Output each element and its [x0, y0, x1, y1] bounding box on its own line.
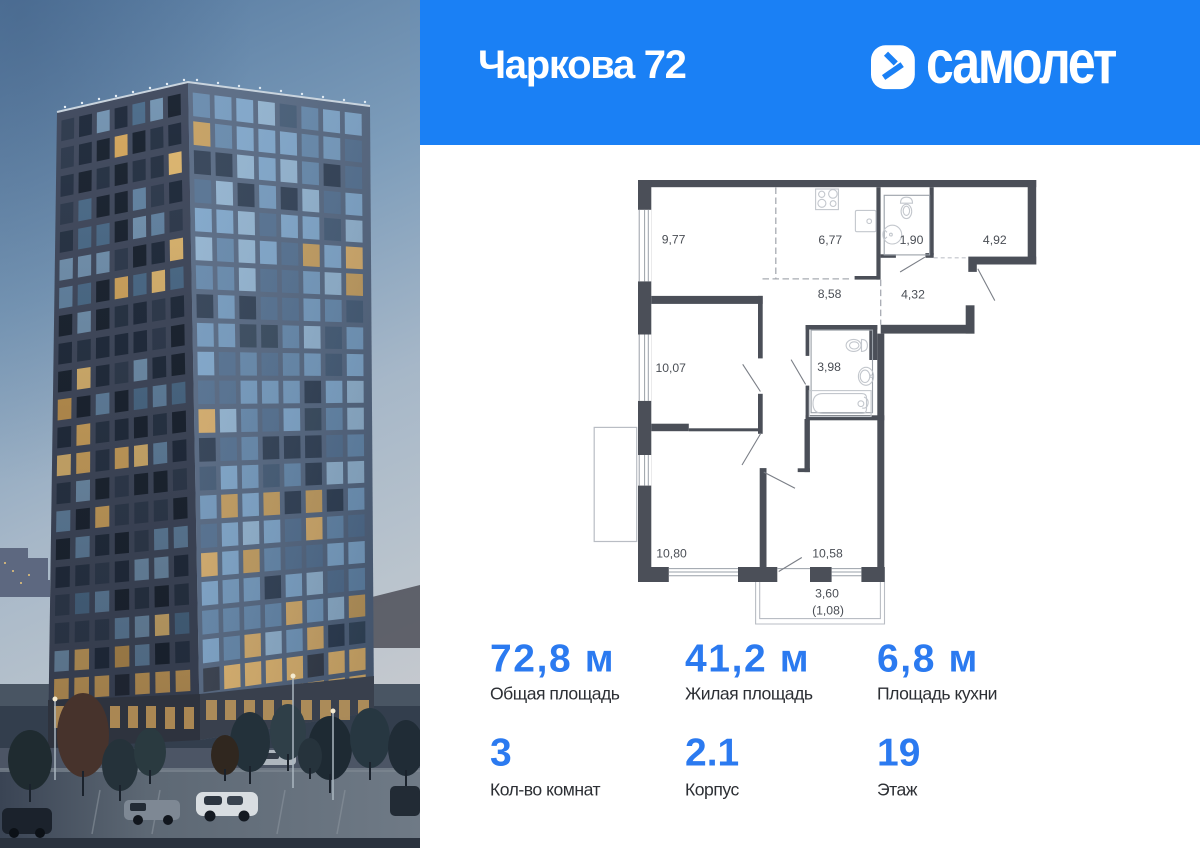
svg-text:Площадь кухни: Площадь кухни — [877, 684, 997, 704]
svg-text:8,58: 8,58 — [818, 287, 842, 301]
svg-text:6,8 м: 6,8 м — [877, 638, 979, 681]
svg-text:41,2 м: 41,2 м — [685, 638, 810, 681]
svg-text:Этаж: Этаж — [877, 780, 918, 800]
svg-text:4,92: 4,92 — [983, 233, 1007, 247]
svg-text:10,07: 10,07 — [655, 361, 686, 375]
svg-text:10,80: 10,80 — [656, 547, 687, 561]
svg-text:9,77: 9,77 — [662, 232, 686, 246]
svg-text:Чаркова 72: Чаркова 72 — [478, 43, 686, 87]
svg-text:Общая площадь: Общая площадь — [490, 684, 620, 704]
svg-text:19: 19 — [877, 732, 920, 775]
svg-text:3,98: 3,98 — [817, 360, 841, 374]
svg-text:6,77: 6,77 — [818, 233, 842, 247]
svg-text:72,8 м: 72,8 м — [490, 638, 615, 681]
svg-text:10,58: 10,58 — [812, 547, 843, 561]
svg-text:3,60: 3,60 — [815, 586, 839, 600]
svg-text:4,32: 4,32 — [901, 287, 925, 301]
svg-text:Корпус: Корпус — [685, 780, 739, 800]
svg-text:Жилая площадь: Жилая площадь — [685, 684, 813, 704]
svg-text:1,90: 1,90 — [900, 233, 924, 247]
svg-text:3: 3 — [490, 732, 512, 775]
svg-text:самолет: самолет — [926, 28, 1116, 96]
svg-text:2.1: 2.1 — [685, 732, 739, 775]
svg-text:(1,08): (1,08) — [812, 604, 844, 618]
svg-text:Кол-во комнат: Кол-во комнат — [490, 780, 600, 800]
